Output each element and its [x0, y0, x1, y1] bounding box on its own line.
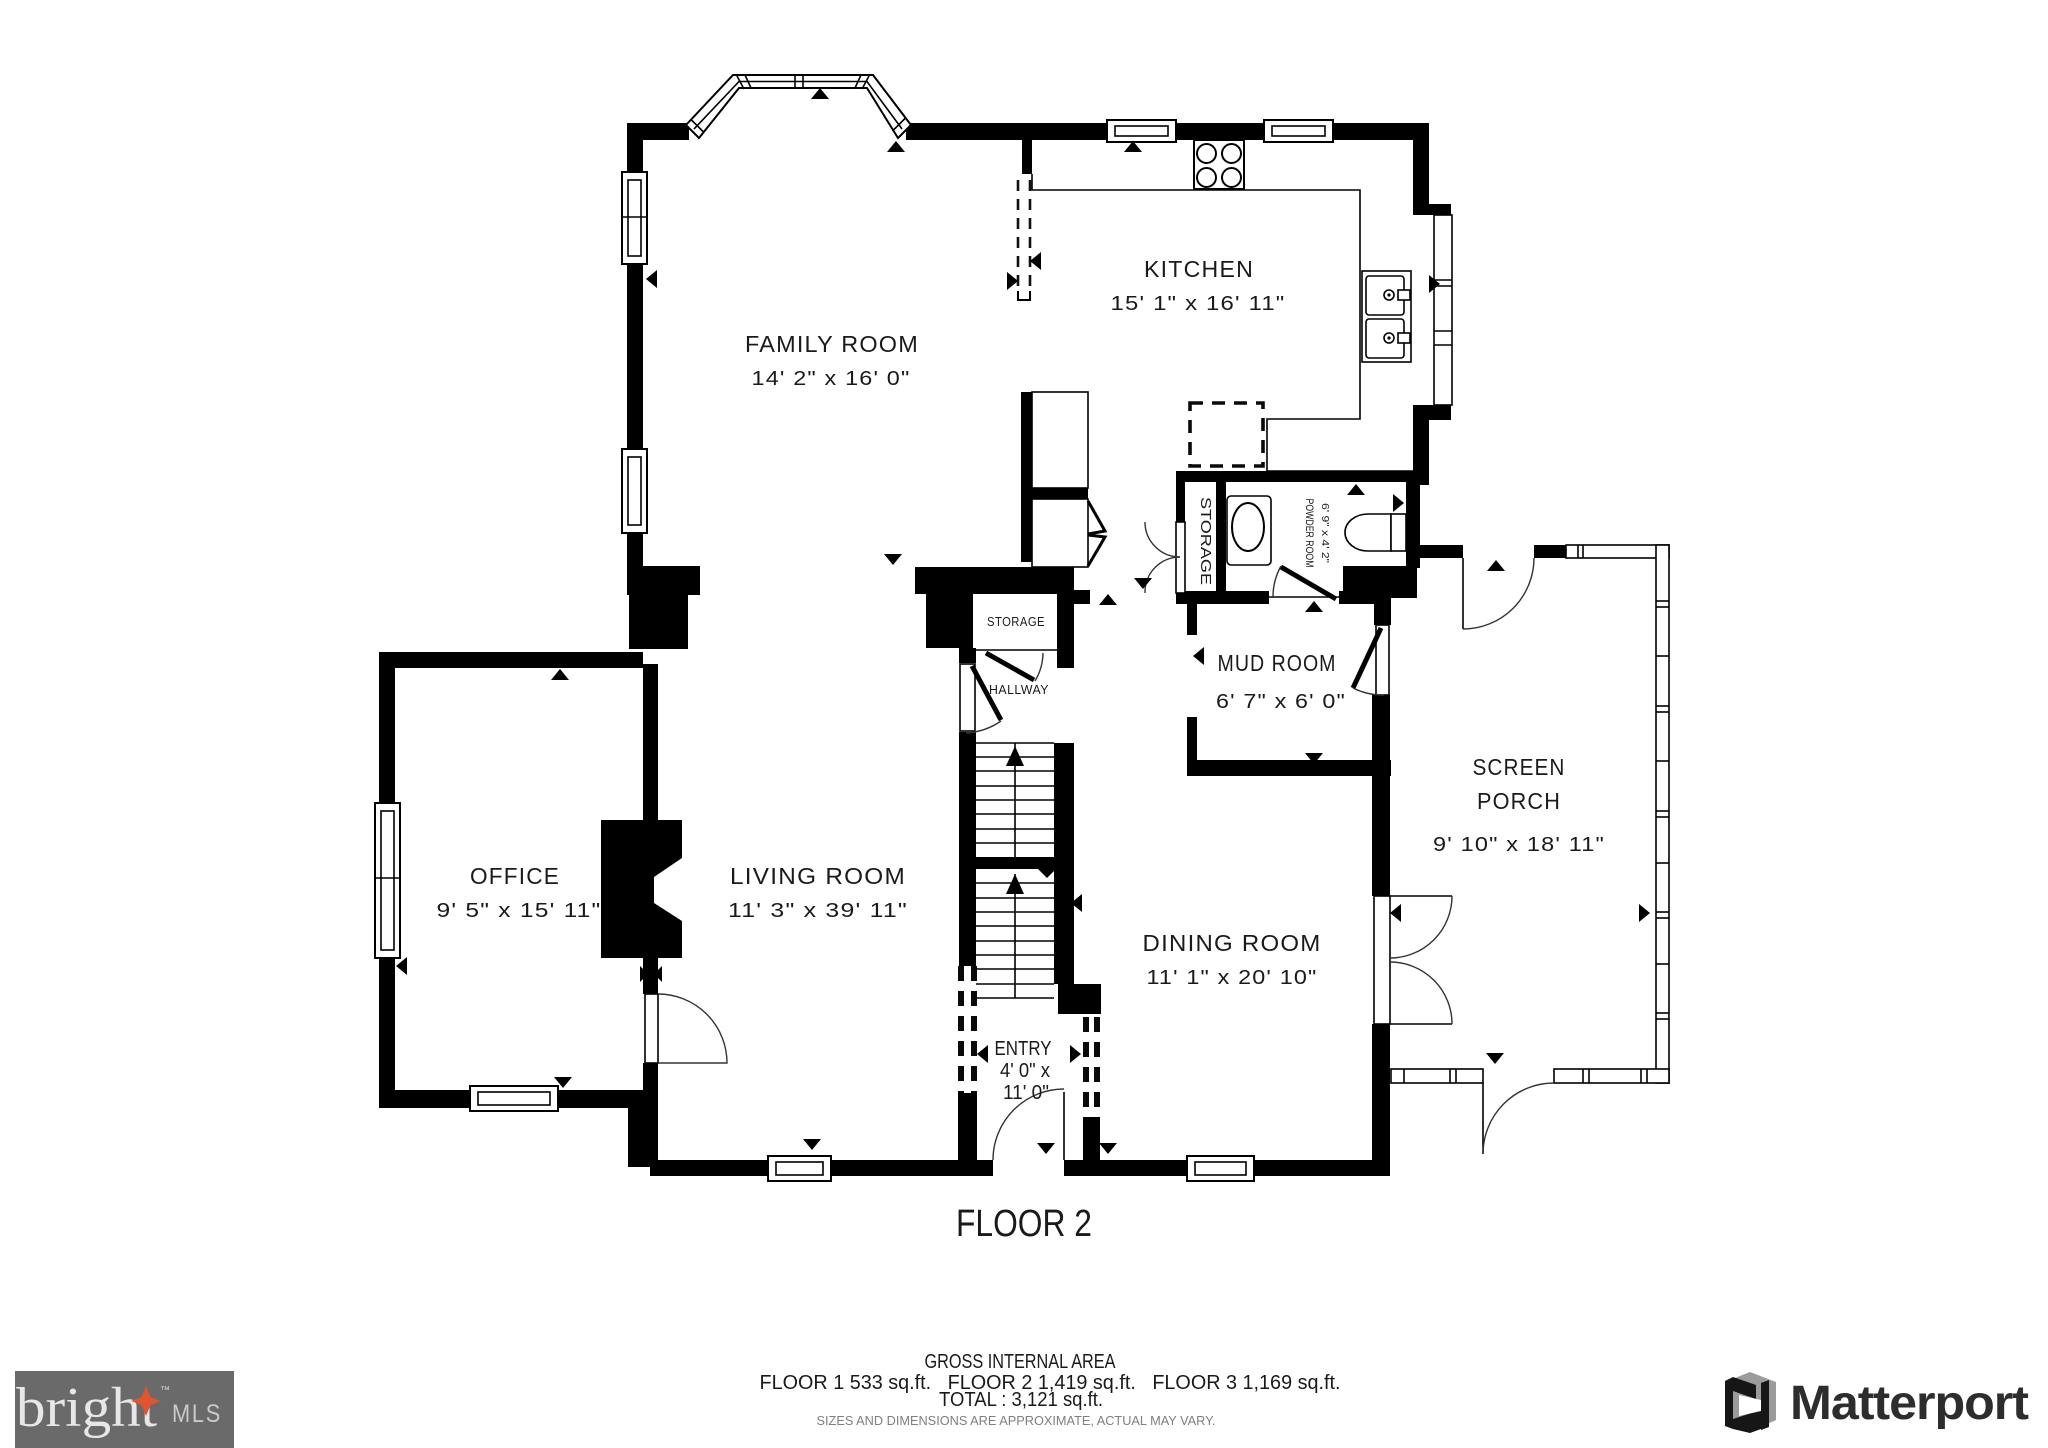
svg-text:™: ™ — [160, 1385, 170, 1396]
svg-text:GROSS INTERNAL AREA: GROSS INTERNAL AREA — [925, 1351, 1117, 1373]
svg-text:11' 1" x 20' 10": 11' 1" x 20' 10" — [1147, 967, 1318, 989]
svg-text:ENTRY: ENTRY — [995, 1038, 1052, 1060]
svg-text:LIVING ROOM: LIVING ROOM — [730, 863, 906, 889]
svg-text:DINING ROOM: DINING ROOM — [1143, 930, 1322, 956]
svg-text:11' 3" x 39' 11": 11' 3" x 39' 11" — [728, 900, 908, 922]
svg-text:SIZES AND DIMENSIONS ARE APPRO: SIZES AND DIMENSIONS ARE APPROXIMATE, AC… — [817, 1413, 1216, 1428]
svg-text:14' 2" x 16' 0": 14' 2" x 16' 0" — [752, 368, 911, 390]
svg-text:15' 1" x 16' 11": 15' 1" x 16' 11" — [1111, 293, 1286, 315]
svg-text:OFFICE: OFFICE — [470, 863, 560, 889]
svg-text:KITCHEN: KITCHEN — [1144, 256, 1254, 282]
svg-text:STORAGE: STORAGE — [987, 615, 1045, 629]
svg-text:TOTAL : 3,121 sq.ft.: TOTAL : 3,121 sq.ft. — [939, 1389, 1103, 1411]
svg-text:FAMILY ROOM: FAMILY ROOM — [745, 331, 919, 357]
svg-text:MUD ROOM: MUD ROOM — [1218, 650, 1337, 676]
svg-text:9' 10" x 18' 11": 9' 10" x 18' 11" — [1433, 834, 1605, 856]
svg-text:6' 7" x 6' 0": 6' 7" x 6' 0" — [1216, 691, 1346, 713]
svg-text:bright: bright — [16, 1377, 157, 1439]
svg-text:11' 0": 11' 0" — [1003, 1082, 1049, 1104]
svg-text:HALLWAY: HALLWAY — [989, 683, 1049, 697]
svg-text:Matterport: Matterport — [1790, 1377, 2029, 1430]
svg-text:POWDER ROOM: POWDER ROOM — [1303, 499, 1315, 568]
svg-text:9' 5" x 15' 11": 9' 5" x 15' 11" — [437, 900, 602, 922]
svg-text:PORCH: PORCH — [1477, 788, 1561, 814]
svg-text:4' 0" x: 4' 0" x — [1000, 1060, 1050, 1082]
svg-text:FLOOR 2: FLOOR 2 — [956, 1203, 1092, 1245]
svg-text:6' 9" x 4' 2": 6' 9" x 4' 2" — [1319, 503, 1330, 564]
svg-text:STORAGE: STORAGE — [1197, 497, 1214, 585]
svg-text:MLS: MLS — [172, 1400, 222, 1428]
svg-text:SCREEN: SCREEN — [1473, 754, 1566, 780]
